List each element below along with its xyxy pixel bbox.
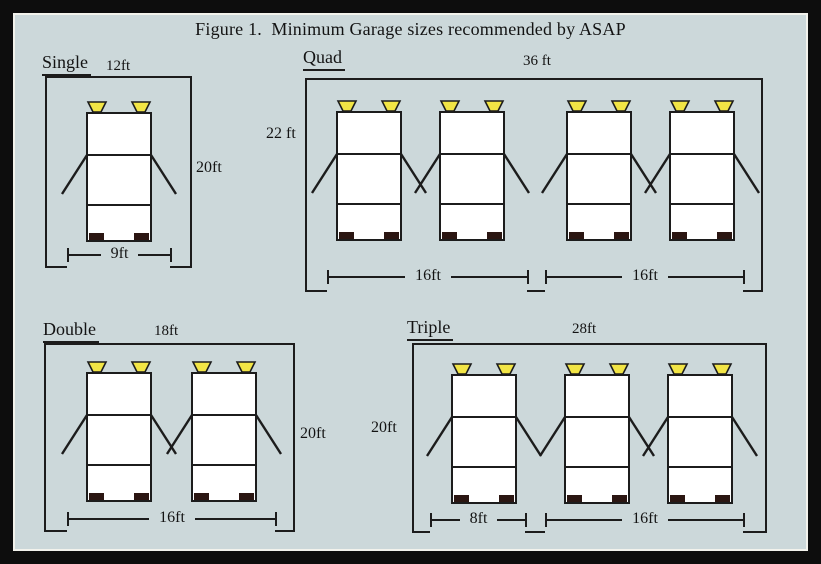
wheel-icon [454,495,469,502]
garage-triple-wall-stub-left [412,531,430,533]
dimension-tick [743,513,745,527]
open-door-left-line [643,417,668,456]
car-body [565,375,629,503]
door-width-label: 16ft [622,511,668,527]
headlight-icon [497,364,515,374]
dimension-line [668,519,743,521]
headlight-icon [566,364,584,374]
dimension-tick [525,513,527,527]
dimension-line [547,519,622,521]
headlight-icon [669,364,687,374]
wheel-icon [670,495,685,502]
dimension-line [497,519,525,521]
door-width-label: 8ft [460,511,498,527]
garage-triple-wall-stub-right [743,531,767,533]
dimension-line [432,519,460,521]
wheel-icon [612,495,627,502]
headlight-icon [453,364,471,374]
headlight-icon [713,364,731,374]
car-top-view [424,363,544,509]
open-door-left-line [540,417,565,456]
garage-triple: Triple 28ft 20ft 8ft 16ft [0,0,821,564]
car-top-view [537,363,657,509]
garage-triple-name-label: Triple [407,318,453,341]
figure: Figure 1. Minimum Garage sizes recommend… [0,0,821,564]
wheel-icon [567,495,582,502]
car-top-view [640,363,760,509]
garage-triple-depth-label: 20ft [371,419,397,437]
garage-triple-wall-pier [525,531,545,533]
wheel-icon [499,495,514,502]
car-body [668,375,732,503]
headlight-icon [610,364,628,374]
open-door-left-line [427,417,452,456]
garage-triple-door-dimension-1: 8ft [430,512,527,528]
garage-triple-door-dimension-2: 16ft [545,512,745,528]
wheel-icon [715,495,730,502]
car-body [452,375,516,503]
garage-triple-width-label: 28ft [572,321,596,338]
open-door-right-line [732,417,757,456]
